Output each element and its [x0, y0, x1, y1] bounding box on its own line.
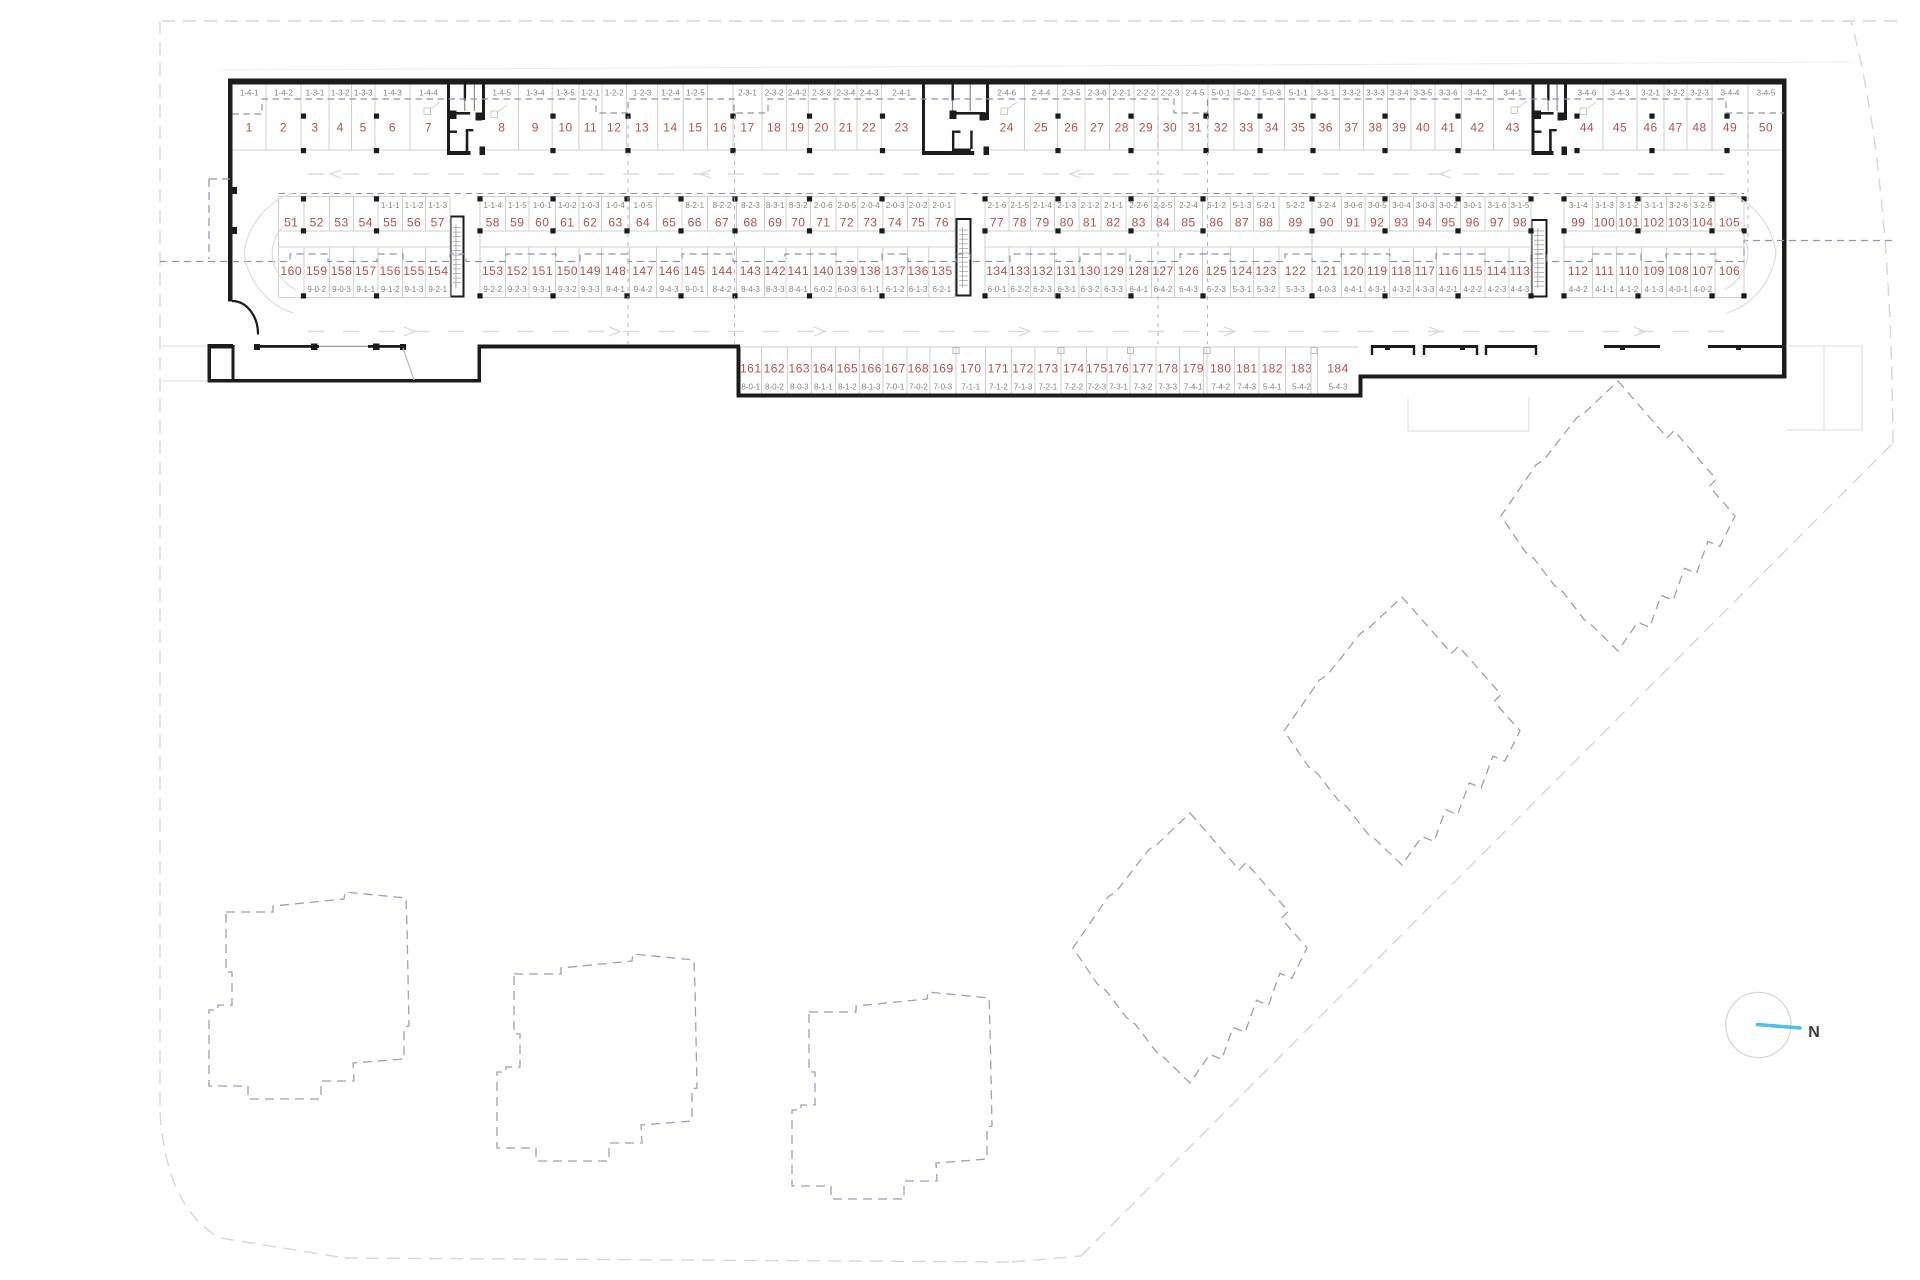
svg-text:163: 163 — [789, 362, 811, 376]
svg-text:172: 172 — [1012, 362, 1034, 376]
svg-text:65: 65 — [662, 216, 676, 230]
svg-text:22: 22 — [862, 121, 876, 135]
svg-text:169: 169 — [932, 362, 954, 376]
svg-text:4-0-1: 4-0-1 — [1669, 285, 1688, 294]
svg-text:178: 178 — [1157, 362, 1179, 376]
svg-text:111: 111 — [1595, 264, 1615, 278]
svg-text:7-2-2: 7-2-2 — [1064, 383, 1083, 392]
svg-text:1-0-4: 1-0-4 — [606, 201, 625, 210]
svg-text:25: 25 — [1034, 121, 1048, 135]
svg-text:2-0-1: 2-0-1 — [933, 201, 952, 210]
svg-text:108: 108 — [1668, 264, 1690, 278]
svg-text:5-1-1: 5-1-1 — [1289, 89, 1308, 98]
svg-text:106: 106 — [1719, 264, 1741, 278]
svg-text:2-1-6: 2-1-6 — [988, 201, 1007, 210]
svg-text:1-0-5: 1-0-5 — [634, 201, 653, 210]
svg-text:2-3-3: 2-3-3 — [812, 89, 831, 98]
svg-text:6-2-2: 6-2-2 — [1010, 285, 1029, 294]
svg-text:129: 129 — [1103, 264, 1125, 278]
svg-text:12: 12 — [607, 121, 621, 135]
svg-text:1-4-5: 1-4-5 — [492, 89, 511, 98]
svg-text:35: 35 — [1291, 121, 1305, 135]
svg-text:3-4-5: 3-4-5 — [1757, 89, 1776, 98]
svg-text:57: 57 — [431, 216, 445, 230]
svg-text:9-3-1: 9-3-1 — [533, 285, 552, 294]
svg-text:95: 95 — [1441, 216, 1455, 230]
svg-text:145: 145 — [684, 264, 706, 278]
svg-text:8-4-3: 8-4-3 — [741, 285, 760, 294]
svg-text:7-1-3: 7-1-3 — [1014, 383, 1033, 392]
svg-text:43: 43 — [1506, 121, 1520, 135]
svg-text:47: 47 — [1668, 121, 1682, 135]
svg-text:1-1-3: 1-1-3 — [428, 201, 447, 210]
svg-text:147: 147 — [632, 264, 654, 278]
svg-text:6-3-3: 6-3-3 — [1104, 285, 1123, 294]
svg-text:1-2-3: 1-2-3 — [633, 89, 652, 98]
svg-text:40: 40 — [1416, 121, 1430, 135]
svg-text:7-2-1: 7-2-1 — [1039, 383, 1058, 392]
svg-text:67: 67 — [715, 216, 729, 230]
svg-text:116: 116 — [1438, 264, 1459, 278]
svg-text:49: 49 — [1723, 121, 1737, 135]
svg-text:3-3-2: 3-3-2 — [1342, 89, 1361, 98]
svg-text:1-4-4: 1-4-4 — [419, 89, 438, 98]
svg-text:5-3-1: 5-3-1 — [1233, 285, 1252, 294]
svg-text:53: 53 — [334, 216, 348, 230]
svg-text:97: 97 — [1490, 216, 1504, 230]
svg-text:3-3-3: 3-3-3 — [1366, 89, 1385, 98]
svg-text:7-2-3: 7-2-3 — [1087, 383, 1106, 392]
svg-text:6-4-2: 6-4-2 — [1154, 285, 1173, 294]
svg-text:6-2-3: 6-2-3 — [1033, 285, 1052, 294]
svg-text:5-0-1: 5-0-1 — [1212, 89, 1231, 98]
svg-text:6-1-2: 6-1-2 — [886, 285, 905, 294]
svg-text:29: 29 — [1139, 121, 1153, 135]
svg-text:5-3-2: 5-3-2 — [1257, 285, 1276, 294]
svg-text:119: 119 — [1367, 264, 1388, 278]
svg-text:85: 85 — [1181, 216, 1195, 230]
svg-text:158: 158 — [331, 264, 353, 278]
svg-text:6-0-1: 6-0-1 — [988, 285, 1007, 294]
svg-text:7-0-1: 7-0-1 — [886, 383, 905, 392]
svg-text:77: 77 — [990, 216, 1004, 230]
svg-text:3-3-1: 3-3-1 — [1316, 89, 1335, 98]
svg-text:7-3-3: 7-3-3 — [1158, 383, 1177, 392]
svg-text:3-0-2: 3-0-2 — [1439, 201, 1458, 210]
svg-text:8-2-3: 8-2-3 — [741, 201, 760, 210]
svg-text:9-4-2: 9-4-2 — [634, 285, 653, 294]
svg-text:8-4-2: 8-4-2 — [713, 285, 732, 294]
svg-text:1-4-2: 1-4-2 — [274, 89, 293, 98]
svg-text:78: 78 — [1013, 216, 1027, 230]
svg-text:11: 11 — [584, 121, 597, 135]
svg-text:71: 71 — [816, 216, 830, 230]
svg-text:2-2-5: 2-2-5 — [1154, 201, 1173, 210]
svg-text:8-0-1: 8-0-1 — [741, 383, 760, 392]
svg-text:5: 5 — [360, 121, 367, 135]
svg-text:102: 102 — [1643, 216, 1665, 230]
svg-text:6-1-1: 6-1-1 — [861, 285, 880, 294]
svg-text:2-2-2: 2-2-2 — [1137, 89, 1156, 98]
svg-text:66: 66 — [688, 216, 702, 230]
svg-text:9-1-1: 9-1-1 — [356, 285, 375, 294]
svg-text:148: 148 — [605, 264, 627, 278]
svg-text:1: 1 — [246, 121, 253, 135]
svg-text:3-1-4: 3-1-4 — [1569, 201, 1588, 210]
svg-text:6: 6 — [389, 121, 396, 135]
svg-text:115: 115 — [1462, 264, 1483, 278]
svg-text:7-3-2: 7-3-2 — [1134, 383, 1153, 392]
svg-text:7-4-2: 7-4-2 — [1211, 383, 1230, 392]
svg-text:130: 130 — [1079, 264, 1101, 278]
svg-text:1-2-4: 1-2-4 — [661, 89, 680, 98]
svg-text:103: 103 — [1668, 216, 1690, 230]
svg-text:21: 21 — [839, 121, 853, 135]
svg-text:151: 151 — [531, 264, 553, 278]
svg-text:2-4-6: 2-4-6 — [997, 89, 1016, 98]
svg-text:19: 19 — [790, 121, 804, 135]
svg-text:3-0-6: 3-0-6 — [1344, 201, 1363, 210]
svg-text:5-4-3: 5-4-3 — [1329, 383, 1348, 392]
svg-text:182: 182 — [1261, 362, 1283, 376]
svg-text:5-1-3: 5-1-3 — [1233, 201, 1252, 210]
svg-text:79: 79 — [1035, 216, 1049, 230]
svg-text:2-0-5: 2-0-5 — [838, 201, 857, 210]
svg-text:7-1-2: 7-1-2 — [989, 383, 1008, 392]
svg-text:15: 15 — [688, 121, 702, 135]
svg-text:149: 149 — [579, 264, 601, 278]
svg-text:9-2-3: 9-2-3 — [508, 285, 527, 294]
svg-text:1-1-2: 1-1-2 — [405, 201, 424, 210]
svg-text:18: 18 — [767, 121, 781, 135]
svg-text:120: 120 — [1342, 264, 1364, 278]
svg-text:5-4-1: 5-4-1 — [1263, 383, 1282, 392]
svg-text:3-2-3: 3-2-3 — [1690, 89, 1709, 98]
svg-text:5-1-2: 5-1-2 — [1207, 201, 1226, 210]
svg-text:2-1-1: 2-1-1 — [1104, 201, 1123, 210]
svg-text:2-1-5: 2-1-5 — [1010, 201, 1029, 210]
svg-text:3-1-1: 3-1-1 — [1645, 201, 1664, 210]
svg-text:91: 91 — [1346, 216, 1360, 230]
svg-text:26: 26 — [1064, 121, 1078, 135]
svg-text:1-3-1: 1-3-1 — [306, 89, 325, 98]
svg-text:9-2-2: 9-2-2 — [483, 285, 502, 294]
svg-text:63: 63 — [608, 216, 622, 230]
svg-text:122: 122 — [1285, 264, 1307, 278]
svg-text:9-1-2: 9-1-2 — [381, 285, 400, 294]
svg-text:1-3-4: 1-3-4 — [526, 89, 545, 98]
svg-text:1-3-2: 1-3-2 — [331, 89, 350, 98]
svg-text:142: 142 — [764, 264, 786, 278]
svg-text:92: 92 — [1370, 216, 1384, 230]
svg-text:155: 155 — [403, 264, 425, 278]
svg-text:6-0-2: 6-0-2 — [814, 285, 833, 294]
svg-text:159: 159 — [306, 264, 328, 278]
svg-text:2-1-3: 2-1-3 — [1057, 201, 1076, 210]
svg-text:8-2-1: 8-2-1 — [685, 201, 704, 210]
svg-text:8-1-2: 8-1-2 — [838, 383, 857, 392]
svg-text:164: 164 — [813, 362, 835, 376]
svg-text:9-0-3: 9-0-3 — [332, 285, 351, 294]
svg-text:2-0-2: 2-0-2 — [909, 201, 928, 210]
svg-text:2-0-3: 2-0-3 — [886, 201, 905, 210]
svg-text:2-3-2: 2-3-2 — [765, 89, 784, 98]
svg-text:3-3-6: 3-3-6 — [1439, 89, 1458, 98]
svg-text:69: 69 — [768, 216, 782, 230]
svg-text:3-1-5: 3-1-5 — [1511, 201, 1530, 210]
svg-text:167: 167 — [884, 362, 906, 376]
svg-text:3-0-1: 3-0-1 — [1463, 201, 1482, 210]
svg-text:2-3-1: 2-3-1 — [738, 89, 757, 98]
svg-text:157: 157 — [355, 264, 377, 278]
svg-text:161: 161 — [740, 362, 762, 376]
svg-text:177: 177 — [1132, 362, 1154, 376]
svg-text:150: 150 — [556, 264, 578, 278]
svg-text:10: 10 — [558, 121, 572, 135]
svg-text:160: 160 — [280, 264, 302, 278]
svg-text:1-1-4: 1-1-4 — [483, 201, 502, 210]
svg-text:3-4-1: 3-4-1 — [1503, 89, 1522, 98]
svg-text:1-0-3: 1-0-3 — [581, 201, 600, 210]
svg-text:9-4-1: 9-4-1 — [606, 285, 625, 294]
svg-text:7-1-1: 7-1-1 — [961, 383, 980, 392]
svg-text:7-3-1: 7-3-1 — [1109, 383, 1128, 392]
svg-text:3-2-6: 3-2-6 — [1669, 201, 1688, 210]
svg-text:175: 175 — [1086, 362, 1108, 376]
svg-text:171: 171 — [988, 362, 1010, 376]
svg-text:28: 28 — [1115, 121, 1129, 135]
svg-text:3: 3 — [311, 121, 318, 135]
svg-text:3-2-5: 3-2-5 — [1693, 201, 1712, 210]
svg-text:60: 60 — [535, 216, 549, 230]
svg-text:76: 76 — [935, 216, 949, 230]
svg-text:4-2-2: 4-2-2 — [1463, 285, 1482, 294]
svg-text:181: 181 — [1236, 362, 1258, 376]
svg-text:1-1-5: 1-1-5 — [508, 201, 527, 210]
svg-text:179: 179 — [1182, 362, 1204, 376]
svg-text:1-0-1: 1-0-1 — [533, 201, 552, 210]
svg-text:48: 48 — [1692, 121, 1706, 135]
svg-text:37: 37 — [1344, 121, 1358, 135]
svg-text:83: 83 — [1132, 216, 1146, 230]
svg-text:132: 132 — [1032, 264, 1054, 278]
svg-text:2-4-5: 2-4-5 — [1186, 89, 1205, 98]
svg-text:87: 87 — [1235, 216, 1249, 230]
svg-text:45: 45 — [1613, 121, 1627, 135]
svg-text:4-3-2: 4-3-2 — [1392, 285, 1411, 294]
svg-text:34: 34 — [1265, 121, 1279, 135]
svg-text:184: 184 — [1327, 362, 1349, 376]
svg-text:143: 143 — [740, 264, 762, 278]
svg-text:6-4-1: 6-4-1 — [1129, 285, 1148, 294]
svg-text:4-4-2: 4-4-2 — [1569, 285, 1588, 294]
svg-text:4-4-3: 4-4-3 — [1511, 285, 1530, 294]
svg-text:74: 74 — [888, 216, 902, 230]
svg-text:138: 138 — [860, 264, 882, 278]
svg-text:8-3-3: 8-3-3 — [766, 285, 785, 294]
svg-text:183: 183 — [1291, 362, 1313, 376]
svg-text:8: 8 — [498, 121, 505, 135]
svg-text:58: 58 — [486, 216, 500, 230]
svg-text:125: 125 — [1206, 264, 1228, 278]
svg-text:7-4-3: 7-4-3 — [1237, 383, 1256, 392]
svg-text:117: 117 — [1415, 264, 1436, 278]
svg-text:3-0-4: 3-0-4 — [1392, 201, 1411, 210]
svg-text:82: 82 — [1106, 216, 1120, 230]
svg-text:170: 170 — [960, 362, 982, 376]
svg-text:2-4-3: 2-4-3 — [860, 89, 879, 98]
svg-text:110: 110 — [1619, 264, 1640, 278]
svg-text:3-2-1: 3-2-1 — [1641, 89, 1660, 98]
svg-text:156: 156 — [379, 264, 401, 278]
svg-text:2-4-1: 2-4-1 — [892, 89, 911, 98]
svg-text:121: 121 — [1316, 264, 1338, 278]
svg-text:137: 137 — [884, 264, 906, 278]
svg-text:165: 165 — [837, 362, 859, 376]
svg-text:166: 166 — [860, 362, 882, 376]
svg-text:180: 180 — [1210, 362, 1232, 376]
svg-text:153: 153 — [482, 264, 504, 278]
svg-text:4-3-1: 4-3-1 — [1368, 285, 1387, 294]
svg-text:2-2-6: 2-2-6 — [1129, 201, 1148, 210]
svg-text:173: 173 — [1037, 362, 1059, 376]
svg-text:136: 136 — [907, 264, 929, 278]
svg-text:107: 107 — [1692, 264, 1714, 278]
svg-text:73: 73 — [863, 216, 877, 230]
svg-text:1-1-1: 1-1-1 — [381, 201, 400, 210]
svg-text:3-4-2: 3-4-2 — [1468, 89, 1487, 98]
svg-text:80: 80 — [1060, 216, 1074, 230]
svg-text:62: 62 — [583, 216, 597, 230]
svg-text:70: 70 — [791, 216, 805, 230]
svg-text:96: 96 — [1466, 216, 1480, 230]
svg-text:1-2-2: 1-2-2 — [605, 89, 624, 98]
svg-text:46: 46 — [1643, 121, 1657, 135]
svg-text:131: 131 — [1056, 264, 1078, 278]
svg-text:140: 140 — [812, 264, 834, 278]
svg-text:23: 23 — [894, 121, 908, 135]
svg-text:13: 13 — [635, 121, 649, 135]
svg-text:1-4-1: 1-4-1 — [240, 89, 259, 98]
svg-text:2-0-4: 2-0-4 — [861, 201, 880, 210]
svg-text:1-0-2: 1-0-2 — [558, 201, 577, 210]
svg-text:101: 101 — [1618, 216, 1640, 230]
svg-text:3-0-5: 3-0-5 — [1368, 201, 1387, 210]
svg-text:2-3-5: 2-3-5 — [1062, 89, 1081, 98]
svg-text:24: 24 — [1000, 121, 1014, 135]
svg-text:9-0-2: 9-0-2 — [307, 285, 326, 294]
svg-text:2-4-4: 2-4-4 — [1032, 89, 1051, 98]
svg-text:9-3-2: 9-3-2 — [558, 285, 577, 294]
svg-text:4-1-1: 4-1-1 — [1595, 285, 1614, 294]
svg-text:2-1-4: 2-1-4 — [1033, 201, 1052, 210]
svg-text:75: 75 — [911, 216, 925, 230]
svg-text:162: 162 — [764, 362, 786, 376]
svg-text:8-4-1: 8-4-1 — [789, 285, 808, 294]
svg-text:27: 27 — [1090, 121, 1104, 135]
svg-text:128: 128 — [1128, 264, 1150, 278]
svg-text:9-3-3: 9-3-3 — [581, 285, 600, 294]
svg-text:2-3-6: 2-3-6 — [1088, 89, 1107, 98]
svg-text:93: 93 — [1394, 216, 1408, 230]
svg-text:4-2-1: 4-2-1 — [1439, 285, 1458, 294]
svg-text:89: 89 — [1288, 216, 1302, 230]
svg-text:9-0-1: 9-0-1 — [685, 285, 704, 294]
svg-text:109: 109 — [1643, 264, 1665, 278]
svg-text:113: 113 — [1510, 264, 1531, 278]
svg-text:90: 90 — [1320, 216, 1334, 230]
svg-text:30: 30 — [1163, 121, 1177, 135]
svg-text:72: 72 — [840, 216, 854, 230]
svg-text:6-4-3: 6-4-3 — [1179, 285, 1198, 294]
svg-text:9-1-3: 9-1-3 — [405, 285, 424, 294]
svg-text:6-2-1: 6-2-1 — [933, 285, 952, 294]
svg-text:5-2-2: 5-2-2 — [1286, 201, 1305, 210]
svg-text:5-3-3: 5-3-3 — [1286, 285, 1305, 294]
svg-text:99: 99 — [1571, 216, 1585, 230]
svg-text:36: 36 — [1319, 121, 1333, 135]
svg-text:123: 123 — [1255, 264, 1277, 278]
svg-text:88: 88 — [1259, 216, 1273, 230]
svg-text:54: 54 — [359, 216, 373, 230]
svg-text:135: 135 — [931, 264, 953, 278]
svg-text:59: 59 — [510, 216, 524, 230]
svg-text:8-1-3: 8-1-3 — [862, 383, 881, 392]
svg-text:4-0-3: 4-0-3 — [1317, 285, 1336, 294]
svg-text:44: 44 — [1580, 121, 1594, 135]
svg-text:50: 50 — [1759, 121, 1773, 135]
svg-text:20: 20 — [814, 121, 828, 135]
svg-text:5-4-2: 5-4-2 — [1292, 383, 1311, 392]
svg-text:38: 38 — [1368, 121, 1382, 135]
svg-text:81: 81 — [1083, 216, 1097, 230]
svg-text:98: 98 — [1513, 216, 1527, 230]
svg-text:3-1-6: 3-1-6 — [1488, 201, 1507, 210]
svg-text:176: 176 — [1108, 362, 1130, 376]
svg-text:126: 126 — [1178, 264, 1200, 278]
svg-text:141: 141 — [787, 264, 809, 278]
svg-text:105: 105 — [1719, 216, 1741, 230]
svg-text:52: 52 — [310, 216, 324, 230]
svg-text:1-2-1: 1-2-1 — [581, 89, 600, 98]
svg-text:6-3-2: 6-3-2 — [1081, 285, 1100, 294]
svg-text:100: 100 — [1594, 216, 1616, 230]
svg-text:112: 112 — [1568, 264, 1589, 278]
svg-text:3-0-3: 3-0-3 — [1416, 201, 1435, 210]
svg-text:104: 104 — [1692, 216, 1714, 230]
svg-text:8-2-2: 8-2-2 — [713, 201, 732, 210]
svg-text:94: 94 — [1418, 216, 1432, 230]
svg-text:3-3-5: 3-3-5 — [1414, 89, 1433, 98]
svg-text:2-4-2: 2-4-2 — [788, 89, 807, 98]
svg-text:1-2-5: 1-2-5 — [686, 89, 705, 98]
svg-text:31: 31 — [1188, 121, 1202, 135]
svg-text:2-2-1: 2-2-1 — [1112, 89, 1131, 98]
svg-text:2-2-3: 2-2-3 — [1161, 89, 1180, 98]
svg-text:127: 127 — [1152, 264, 1174, 278]
svg-text:146: 146 — [658, 264, 680, 278]
svg-text:56: 56 — [407, 216, 421, 230]
svg-text:7-0-2: 7-0-2 — [909, 383, 928, 392]
svg-text:152: 152 — [506, 264, 528, 278]
svg-text:4-4-1: 4-4-1 — [1344, 285, 1363, 294]
svg-text:114: 114 — [1487, 264, 1508, 278]
svg-text:64: 64 — [636, 216, 650, 230]
svg-text:4-3-3: 4-3-3 — [1416, 285, 1435, 294]
svg-text:32: 32 — [1214, 121, 1228, 135]
svg-text:2: 2 — [280, 121, 287, 135]
svg-text:3-1-3: 3-1-3 — [1595, 201, 1614, 210]
